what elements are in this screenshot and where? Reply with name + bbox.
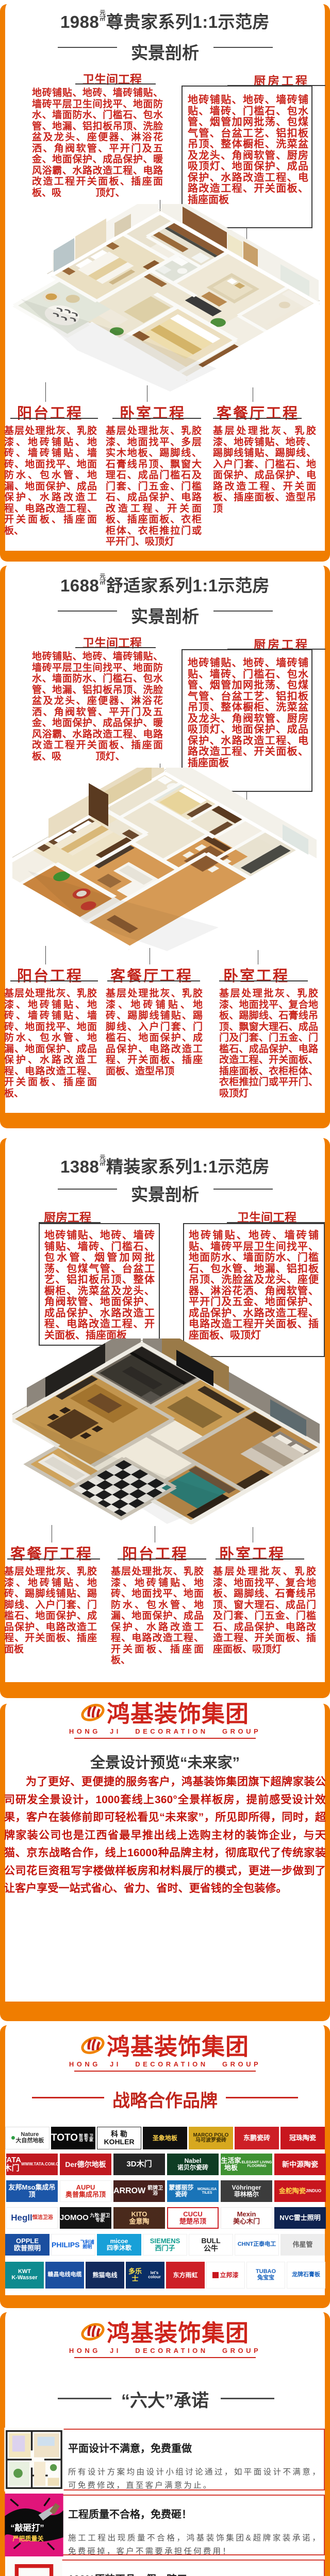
- svg-text:“敲砸打”: “敲砸打”: [10, 2523, 44, 2533]
- svg-text:严把质量关: 严把质量关: [12, 2535, 44, 2543]
